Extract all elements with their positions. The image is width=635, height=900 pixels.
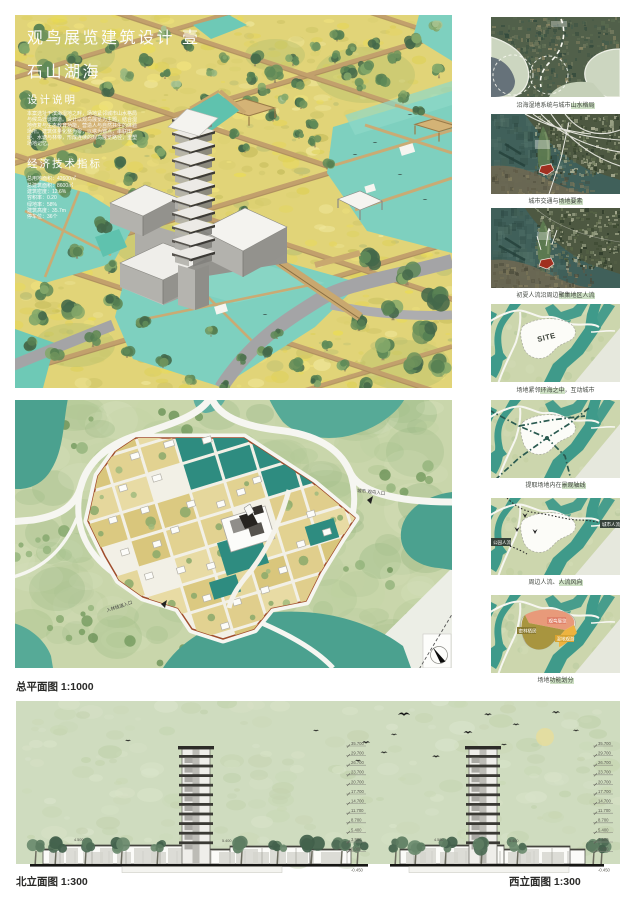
svg-text:29.700: 29.700: [598, 751, 611, 756]
svg-text:23.700: 23.700: [351, 770, 364, 775]
svg-text:17.700: 17.700: [351, 789, 364, 794]
svg-text:城市人流: 城市人流: [602, 521, 620, 528]
svg-text:密林栖居: 密林栖居: [519, 628, 537, 635]
svg-text:0.000: 0.000: [598, 847, 609, 852]
svg-text:4.500: 4.500: [434, 838, 444, 842]
svg-text:8.700: 8.700: [598, 818, 609, 823]
svg-text:29.700: 29.700: [351, 751, 364, 756]
svg-text:5.400: 5.400: [598, 827, 609, 832]
svg-text:5.400: 5.400: [509, 839, 519, 843]
svg-text:湿地观游: 湿地观游: [557, 636, 575, 643]
svg-text:11.700: 11.700: [598, 808, 611, 813]
svg-text:14.700: 14.700: [351, 799, 364, 804]
svg-text:26.700: 26.700: [351, 760, 364, 765]
svg-text:4.500: 4.500: [74, 838, 84, 842]
svg-text:8.700: 8.700: [351, 818, 362, 823]
svg-text:20.700: 20.700: [598, 779, 611, 784]
svg-text:35.700: 35.700: [351, 741, 364, 746]
svg-text:-0.450: -0.450: [351, 868, 364, 873]
svg-text:14.700: 14.700: [598, 799, 611, 804]
svg-text:公园人流: 公园人流: [493, 539, 511, 546]
svg-text:3.900: 3.900: [351, 837, 362, 842]
svg-text:观鸟展览: 观鸟展览: [549, 618, 567, 625]
svg-text:23.700: 23.700: [598, 770, 611, 775]
svg-text:3.900: 3.900: [598, 837, 609, 842]
svg-text:35.700: 35.700: [598, 741, 611, 746]
svg-text:11.700: 11.700: [351, 808, 364, 813]
svg-text:20.700: 20.700: [351, 779, 364, 784]
svg-text:5.400: 5.400: [351, 827, 362, 832]
svg-text:17.700: 17.700: [598, 789, 611, 794]
svg-text:0.000: 0.000: [351, 847, 362, 852]
svg-text:26.700: 26.700: [598, 760, 611, 765]
svg-text:5.400: 5.400: [222, 839, 232, 843]
svg-text:-0.450: -0.450: [598, 868, 611, 873]
